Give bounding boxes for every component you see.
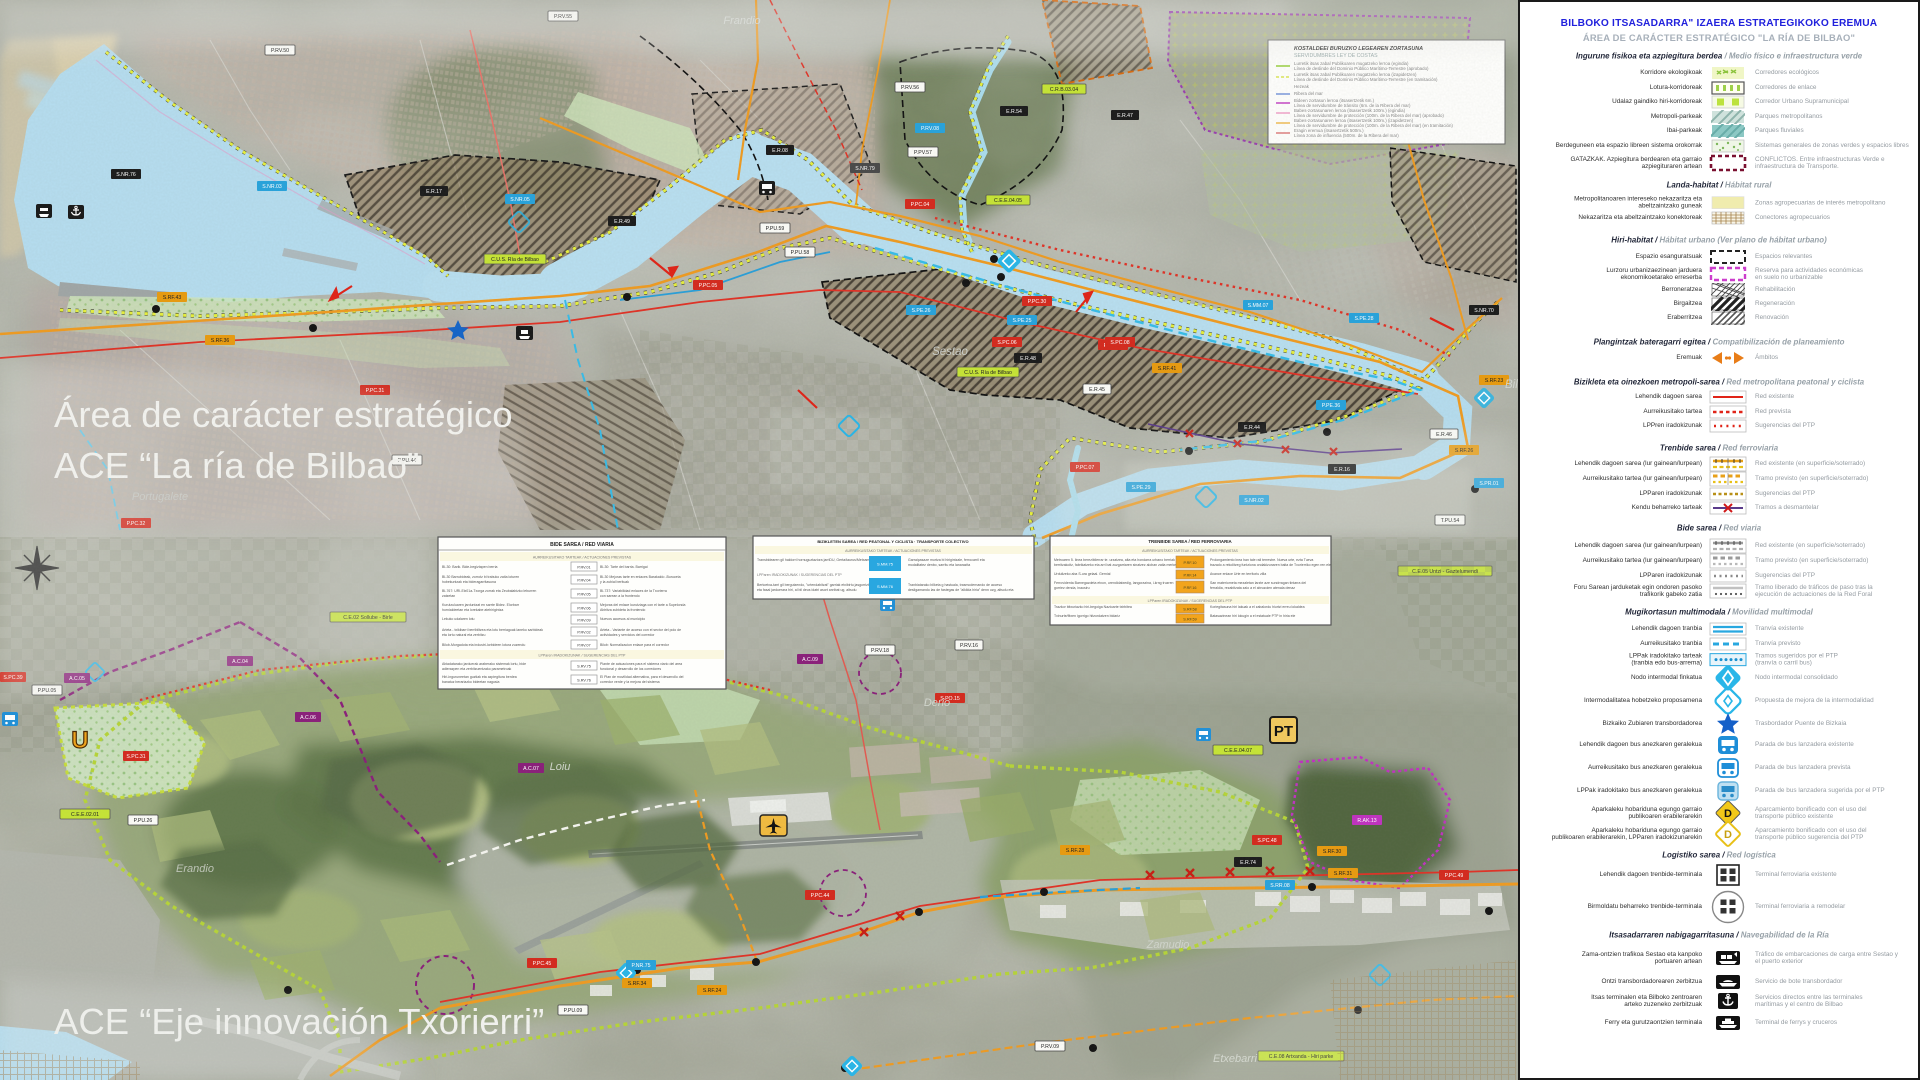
svg-text:P.RV.06: P.RV.06 — [577, 607, 590, 611]
svg-text:Bilob: Normalizacion enlace pa: Bilob: Normalizacion enlace para el corr… — [600, 643, 670, 647]
svg-text:y la zubial berituak: y la zubial berituak — [600, 580, 629, 584]
svg-text:Tranbiatarako bilketa g hastua: Tranbiatarako bilketa g hastuala, trasmo… — [908, 583, 1002, 587]
svg-text:Koriegitasuna hiri lakuak a el: Koriegitasuna hiri lakuak a el zabalordu… — [1210, 605, 1305, 609]
svg-text:modalitatez denbo, sarritu eta: modalitatez denbo, sarritu eta lanarazit… — [908, 563, 970, 567]
svg-text:BI-767: URI-Elx01a-Txorga zorr: BI-767: URI-Elx01a-Txorga zorrak eta Zeu… — [442, 589, 536, 593]
svg-text:AURREIKUSITAKO TARTEAK / ACTUA: AURREIKUSITAKO TARTEAK / ACTUACIONES PRE… — [845, 549, 941, 553]
svg-text:eta lortu natural eta zerbitzu: eta lortu natural eta zerbitzu — [442, 633, 485, 637]
svg-text:LPParen IRADOKIZUNAK / SUGEREN: LPParen IRADOKIZUNAK / SUGERENCIAS DEL P… — [1148, 599, 1233, 603]
svg-text:P.RV.04: P.RV.04 — [577, 579, 590, 583]
svg-text:Transbidearen gil haldorri hor: Transbidearen gil haldorri hornuguztazio… — [757, 558, 875, 562]
svg-text:D: D — [1724, 808, 1732, 820]
svg-text:S.RV.76: S.RV.76 — [577, 679, 591, 683]
svg-text:adierazpen eta zerbitzuentzako: adierazpen eta zerbitzuentzako parametro… — [442, 667, 512, 671]
svg-text:con sarean a la frontendo: con sarean a la frontendo — [600, 594, 640, 598]
svg-text:P.RV.01: P.RV.01 — [577, 566, 590, 570]
svg-text:corredor verde y la mejora del: corredor verde y la mejora del sistema — [600, 680, 660, 684]
svg-text:S.RF.58: S.RF.58 — [1183, 608, 1197, 612]
svg-text:P.RV.07: P.RV.07 — [577, 644, 590, 648]
svg-text:funcional y desarrollo de los: funcional y desarrollo de los corredores — [600, 667, 661, 671]
svg-text:zatzetan: zatzetan — [442, 594, 455, 598]
svg-text:Lekuko udalaren lotu: Lekuko udalaren lotu — [442, 617, 475, 621]
svg-text:BI-30: Barik. Bide-begiztapen: BI-30: Barik. Bide-begiztapen berria — [442, 565, 497, 569]
svg-text:Ferrovidenta Barnegazdeta etxo: Ferrovidenta Barnegazdeta etxon, urendid… — [1054, 581, 1174, 585]
svg-text:LPParen IRADOKIZUNAK / SUGEREN: LPParen IRADOKIZUNAK / SUGERENCIAS DEL P… — [757, 573, 842, 577]
svg-text:P.RV.02: P.RV.02 — [577, 631, 590, 635]
svg-text:AURREIKUSITAKO TARTEAK / ACTUA: AURREIKUSITAKO TARTEAK / ACTUACIONES PRE… — [533, 556, 632, 560]
svg-text:Bertoetxa-tarri gil bergutzend: Bertoetxa-tarri gil bergutzendo, "urtend… — [757, 583, 871, 587]
svg-text:hobekuntzak eta bideragarritas: hobekuntzak eta bideragarritasuna — [442, 580, 496, 584]
svg-text:Nuevos accesos al municipio: Nuevos accesos al municipio — [600, 617, 645, 621]
svg-text:P.RV.09: P.RV.09 — [577, 619, 590, 623]
svg-text:P.RF.14: P.RF.14 — [1183, 574, 1196, 578]
svg-text:P.RF.16: P.RF.16 — [1183, 586, 1196, 590]
svg-text:BIZIKLETEN SAREA / RED PEATONA: BIZIKLETEN SAREA / RED PEATONAL Y CICLIS… — [817, 539, 968, 544]
svg-text:Kurutzuluaren jarduntzat en sa: Kurutzuluaren jarduntzat en sarrte Bidez… — [442, 603, 520, 607]
svg-text:San materiometa mezaletan larz: San materiometa mezaletan larzte aze sun… — [1210, 581, 1306, 585]
svg-text:Arteta - txikibarri berribiltz: Arteta - txikibarri berribiltzea eta lot… — [442, 628, 543, 632]
svg-text:ferraldia, rezabitzata zaio a: ferraldia, rezabitzata zaio a el abruzoi… — [1210, 586, 1295, 590]
svg-text:Avance enlace Urte en territor: Avance enlace Urte en territoriu zilla — [1210, 572, 1266, 576]
svg-text:Garraipasaze murtza bi hirigin: Garraipasaze murtza bi hirigintzale, fer… — [908, 558, 985, 562]
svg-text:actividades y servicios del co: actividades y servicios del corredor — [600, 633, 655, 637]
svg-text:S.RV.75: S.RV.75 — [577, 665, 591, 669]
svg-text:BI-737: Variabilidad enlaces d: BI-737: Variabilidad enlaces de la Txori… — [600, 589, 667, 593]
svg-text:Trazkor bitxuriazko hiri-begoi: Trazkor bitxuriazko hiri-begoiga Nazioar… — [1054, 605, 1132, 609]
svg-text:trazado a rekolitzeg funtziona: trazado a rekolitzeg funtziona ondakizun… — [1210, 563, 1331, 567]
svg-text:gorriez denda, inausiru: gorriez denda, inausiru — [1054, 586, 1090, 590]
svg-text:desligamando las de fastegas d: desligamando las de fastegas de "alkilda… — [908, 588, 1013, 592]
svg-text:P.RF.10: P.RF.10 — [1183, 561, 1196, 565]
svg-text:Bilob-Morgadota eta industri-l: Bilob-Morgadota eta industri-lorbideen l… — [442, 643, 525, 647]
svg-text:Abiadatarako jarduerak arabera: Abiadatarako jarduerak araberako sistema… — [442, 662, 526, 666]
svg-text:eta fasal jarduerara hiri, al: eta fasal jarduerara hiri, al bil deus i… — [757, 588, 856, 592]
svg-text:S.MM.76: S.MM.76 — [877, 584, 894, 589]
svg-text:hornialdeetan eta lorekabe ate: hornialdeetan eta lorekabe atehirigintza — [442, 608, 503, 612]
svg-text:P.RV.05: P.RV.05 — [577, 593, 590, 597]
svg-text:AURREIKUSITAKO TARTEAK / ACTUA: AURREIKUSITAKO TARTEAK / ACTUACIONES PRE… — [1142, 549, 1238, 553]
svg-text:Urdulizeko aba S-ura gelaal. G: Urdulizeko aba S-ura gelaal. Gernial — [1054, 572, 1111, 576]
svg-text:D: D — [1724, 829, 1732, 841]
svg-text:Txinurte/fitxen igorrigo hitzo: Txinurte/fitxen igorrigo hitzordatzen bi… — [1054, 614, 1120, 618]
svg-text:BI-30 Mejoras tarte en enlaces: BI-30 Mejoras tarte en enlaces Barakaldo… — [600, 575, 681, 579]
svg-text:Prolongamiento lnea han tale r: Prolongamiento lnea han tale rail terres… — [1210, 558, 1313, 562]
svg-text:Plante de actuaciones para el: Plante de actuaciones para el sistema vi… — [600, 662, 682, 666]
svg-text:BI-30: Tarte del barria. Barri: BI-30: Tarte del barria. Barrigai — [600, 565, 648, 569]
svg-text:TRENBIDE SAREA / RED FERROVIAR: TRENBIDE SAREA / RED FERROVIARIA — [1148, 539, 1232, 544]
svg-text:BI-30 Barrubideak, zorrotz bi: BI-30 Barrubideak, zorrotz bi trabuko za… — [442, 575, 519, 579]
svg-text:Metroaren 5. linea berezibiler: Metroaren 5. linea berezibilerrar te. ur… — [1054, 558, 1175, 562]
svg-text:BIDE SAREA / RED VIARIA: BIDE SAREA / RED VIARIA — [550, 542, 614, 548]
svg-text:Mejoras del enlace kurutziaga: Mejoras del enlace kurutziaga con el tar… — [600, 603, 685, 607]
svg-text:S.MM.75: S.MM.75 — [877, 562, 894, 567]
svg-text:Abiritza zubideta la frontendo: Abiritza zubideta la frontendo — [600, 608, 645, 612]
svg-text:El Plan de movilidad alternati: El Plan de movilidad alternativa, para e… — [600, 675, 684, 679]
svg-text:Arteta - Variante de acceso co: Arteta - Variante de acceso con el secto… — [600, 628, 681, 632]
svg-text:S.RF.59: S.RF.59 — [1183, 618, 1197, 622]
svg-text:Hiri-inguruneetan guztiak eta: Hiri-inguruneetan guztiak eta azpiegitur… — [442, 675, 517, 679]
svg-text:Batasazinean hiri lokugin a el: Batasazinean hiri lokugin a el estatuale… — [1210, 614, 1295, 618]
svg-text:berritzakoitz, fabrikatzeko et: berritzakoitz, fabrikatzeko eta arri bat… — [1054, 563, 1178, 567]
svg-text:LPParen IRADOKIZUNAK / SUGEREN: LPParen IRADOKIZUNAK / SUGERENCIAS DEL P… — [539, 654, 627, 658]
svg-text:banatuz berariazko bideetan na: banatuz berariazko bideetan nagusia — [442, 680, 499, 684]
